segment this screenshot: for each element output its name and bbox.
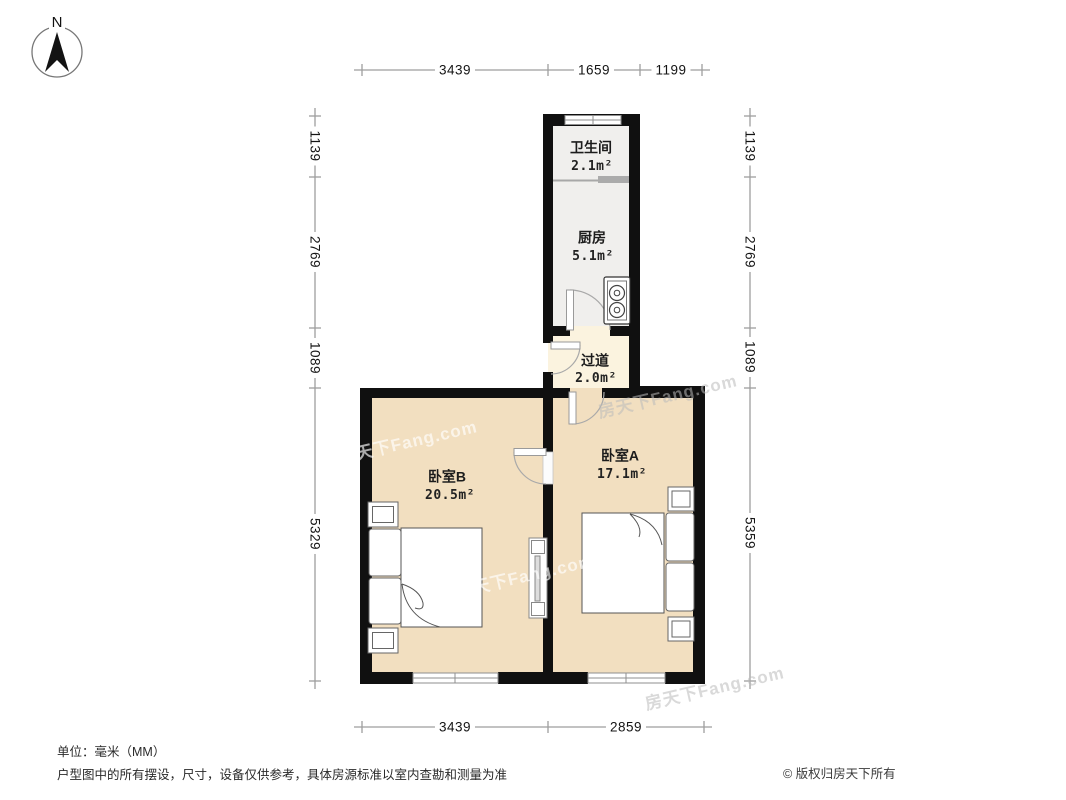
pillow: [666, 563, 694, 611]
bathroom-area: 2.1m²: [571, 160, 613, 174]
bottom-wall-segment-1: [360, 672, 413, 684]
kitchen-bottom-wall-left: [543, 326, 570, 336]
pillow: [666, 513, 694, 561]
bed-b: [401, 528, 482, 627]
dim-left-1: 1139: [308, 126, 323, 165]
right-dimension-line: [744, 108, 756, 689]
kitchen-area: 5.1m²: [572, 250, 614, 264]
dim-right-4: 5359: [743, 513, 758, 553]
dim-bottom-1: 3439: [435, 720, 475, 735]
bathroom-label: 卫生间: [570, 141, 612, 156]
hallway-area: 2.0m²: [575, 372, 617, 386]
middle-wall-upper: [543, 396, 553, 452]
bed-a: [582, 513, 664, 613]
kitchen-bottom-wall-right: [610, 326, 640, 336]
hallway-bottom-wall-right: [602, 388, 640, 398]
nightstand: [668, 617, 694, 641]
floorplan-drawing: [0, 0, 1066, 800]
bedroom-b-window: [413, 673, 498, 683]
left-dimension-line: [309, 108, 321, 689]
dim-left-4: 5329: [308, 514, 323, 554]
dim-top-2: 1659: [574, 63, 614, 78]
kitchen-label: 厨房: [578, 231, 606, 246]
bedroom-door-gap: [543, 452, 553, 484]
north-compass: N: [24, 8, 94, 88]
floorplan-page: N 房天下Fang.com 房天下Fang.com 房天下Fang.com 房天…: [0, 0, 1066, 800]
pillow: [369, 578, 401, 624]
bedroom-a-label: 卧室A: [601, 449, 639, 464]
bedroom-a-window: [588, 673, 665, 683]
dim-right-2: 2769: [743, 232, 758, 272]
bottom-wall-segment-2: [498, 672, 588, 684]
nightstand: [368, 628, 398, 653]
stove-burner: [610, 286, 625, 301]
disclaimer: 户型图中的所有摆设，尺寸，设备仅供参考，具体房源标准以室内查勘和测量为准: [57, 768, 507, 783]
bottom-dimension-line: [354, 721, 712, 733]
dim-right-1: 1139: [743, 126, 758, 165]
bedroom-b-label: 卧室B: [428, 470, 466, 485]
stove-burner: [610, 303, 625, 318]
bottom-wall-segment-3: [665, 672, 705, 684]
dim-right-3: 1089: [743, 337, 758, 377]
dim-bottom-2: 2859: [606, 720, 646, 735]
copyright: © 版权归房天下所有: [783, 767, 896, 782]
unit-note: 单位：毫米（MM）: [57, 745, 165, 760]
dim-left-2: 2769: [308, 232, 323, 272]
pillow: [369, 529, 401, 576]
hallway-label: 过道: [581, 354, 609, 369]
bedroom-b-top-wall: [360, 388, 543, 398]
dim-left-3: 1089: [308, 338, 323, 378]
bedroom-b-area: 20.5m²: [425, 489, 475, 503]
dim-top-3: 1199: [651, 63, 690, 78]
wardrobe: [529, 538, 547, 618]
compass-north-label: N: [52, 14, 63, 31]
nightstand: [668, 487, 694, 511]
dim-top-1: 3439: [435, 63, 475, 78]
stove: [604, 277, 630, 324]
upper-left-wall: [543, 114, 553, 343]
bedroom-a-area: 17.1m²: [597, 468, 647, 482]
right-outer-wall: [693, 386, 705, 684]
upper-right-wall: [629, 114, 640, 390]
nightstand: [368, 502, 398, 527]
bathroom-window: [565, 116, 621, 125]
